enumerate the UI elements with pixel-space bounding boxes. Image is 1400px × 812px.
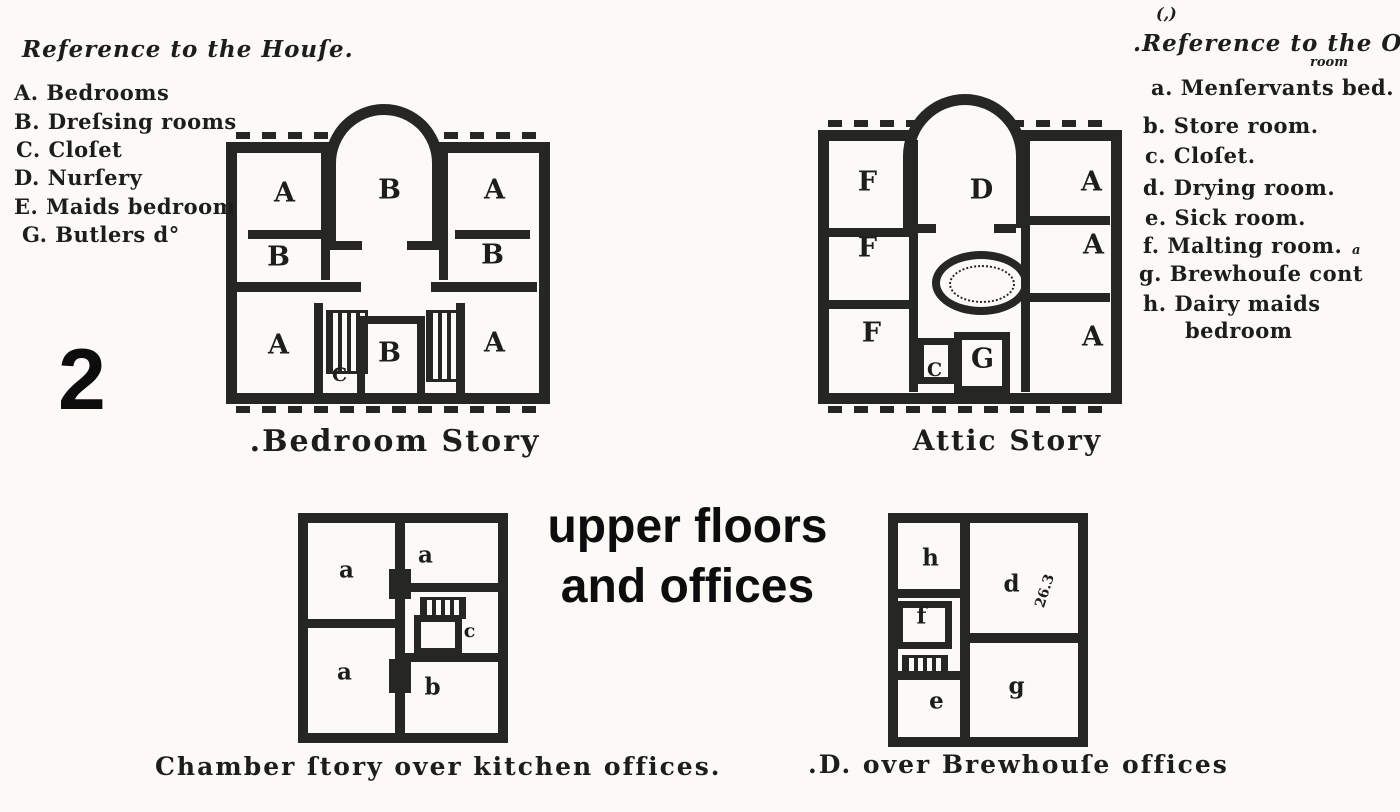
legend-item-d: d. Drying room. — [1143, 175, 1335, 200]
wall-segment — [417, 316, 425, 393]
wall-segment — [237, 282, 361, 292]
room-label: A — [1082, 322, 1104, 353]
room-label: C — [927, 359, 943, 381]
room-label: e — [929, 688, 945, 715]
wall-segment — [994, 224, 1016, 233]
legend-item-b: b. Store room. — [1143, 113, 1319, 138]
legend-item-h-cont: bedroom — [1185, 318, 1293, 343]
room-label: A — [484, 328, 506, 359]
legend-item-d: D. Nurſery — [14, 165, 142, 190]
wall-segment — [357, 316, 425, 324]
chimney — [389, 659, 411, 693]
room-label: A — [274, 178, 296, 209]
offices-legend-top-mark: (,) — [1156, 4, 1177, 23]
legend-item-e: E. Maids bedroom — [14, 194, 235, 219]
wall-segment — [898, 671, 960, 680]
brewhouse-plan: h d 26.3 f e g — [888, 513, 1092, 751]
wall-segment — [405, 583, 498, 592]
wall-segment — [898, 589, 960, 598]
wall-segment — [439, 153, 448, 280]
legend-item-c: C. Cloſet — [16, 137, 122, 162]
room-label: h — [922, 545, 940, 572]
room-label: A — [1083, 230, 1105, 261]
chamber-story-caption: Chamber ſtory over kitchen offices. — [155, 752, 550, 781]
room-label: d — [1003, 571, 1020, 598]
wall-segment — [321, 153, 330, 280]
overlay-note-line1: upper floors — [515, 497, 860, 557]
wall-segment — [314, 303, 323, 393]
room-label: A — [484, 175, 506, 206]
room-label: a — [418, 542, 434, 569]
wall-segment — [407, 241, 433, 250]
room-label: G — [971, 344, 995, 375]
bedroom-story-plan: A B A B B A B C A — [226, 98, 552, 422]
offices-legend: .Reference to the Offices. a. Menſervant… — [1133, 30, 1398, 360]
room-label: B — [378, 338, 402, 369]
house-legend-title: Reference to the Houſe. — [22, 36, 354, 63]
room-label: f — [917, 603, 928, 630]
offices-legend-title: .Reference to the Offices. — [1133, 30, 1400, 57]
legend-item-f: f. Malting room. — [1143, 233, 1342, 258]
room-label: b — [424, 674, 441, 701]
wall-segment — [829, 300, 909, 309]
room-label: B — [378, 175, 402, 206]
page-number: 2 — [58, 337, 106, 423]
room-label: F — [858, 233, 878, 264]
bow-wall — [903, 94, 1027, 228]
wall-segment — [1030, 216, 1110, 225]
wall-segment — [357, 316, 365, 393]
wall-segment — [455, 230, 530, 239]
room-label: g — [1008, 673, 1025, 700]
chamber-story-plan: a a c a b — [298, 513, 512, 747]
room-label: C — [332, 364, 348, 386]
closet-walls — [414, 615, 462, 655]
legend-item-a: a. Menſervants bed. — [1151, 75, 1394, 100]
wall-segment — [1030, 293, 1110, 302]
overlay-note-line2: and offices — [515, 557, 860, 617]
bedroom-story-caption: .Bedroom Story — [235, 424, 555, 459]
legend-item-g: G. Butlers d° — [22, 222, 180, 247]
room-label: D — [970, 175, 994, 206]
room-label: F — [862, 318, 882, 349]
room-label: a — [337, 659, 353, 686]
overlay-note: upper floors and offices — [515, 497, 860, 617]
room-label: c — [464, 620, 477, 642]
room-label: A — [268, 330, 290, 361]
legend-item-c: c. Cloſet. — [1145, 143, 1256, 168]
brewhouse-caption: .D. over Brewhouſe offices — [808, 750, 1168, 779]
wall-segment — [308, 619, 395, 628]
dome-oval-inner — [949, 265, 1015, 303]
legend-item-h: h. Dairy maids — [1143, 291, 1321, 316]
attic-story-caption: Attic Story — [895, 424, 1120, 457]
wall-segment — [405, 653, 498, 662]
house-legend: Reference to the Houſe. A. Bedrooms B. D… — [14, 36, 274, 266]
room-label: a — [339, 557, 355, 584]
room-label: A — [1081, 167, 1103, 198]
wall-segment — [395, 523, 405, 733]
wall-segment — [456, 303, 465, 393]
room-label: B — [481, 240, 505, 271]
legend-item-a: A. Bedrooms — [14, 80, 169, 105]
parapet — [828, 406, 1112, 413]
parapet — [236, 406, 540, 413]
scanned-plan-page: Reference to the Houſe. A. Bedrooms B. D… — [0, 0, 1400, 812]
attic-story-plan: F D A F A F C G A — [816, 88, 1126, 422]
wall-segment — [960, 523, 970, 737]
legend-item-g: g. Brewhouſe cont — [1139, 261, 1363, 286]
room-label: F — [858, 167, 878, 198]
wall-segment — [336, 241, 362, 250]
legend-item-e: e. Sick room. — [1145, 205, 1306, 230]
wall-segment — [970, 633, 1078, 643]
legend-item-b: B. Dreſsing rooms — [14, 109, 237, 134]
wall-segment — [431, 282, 537, 292]
